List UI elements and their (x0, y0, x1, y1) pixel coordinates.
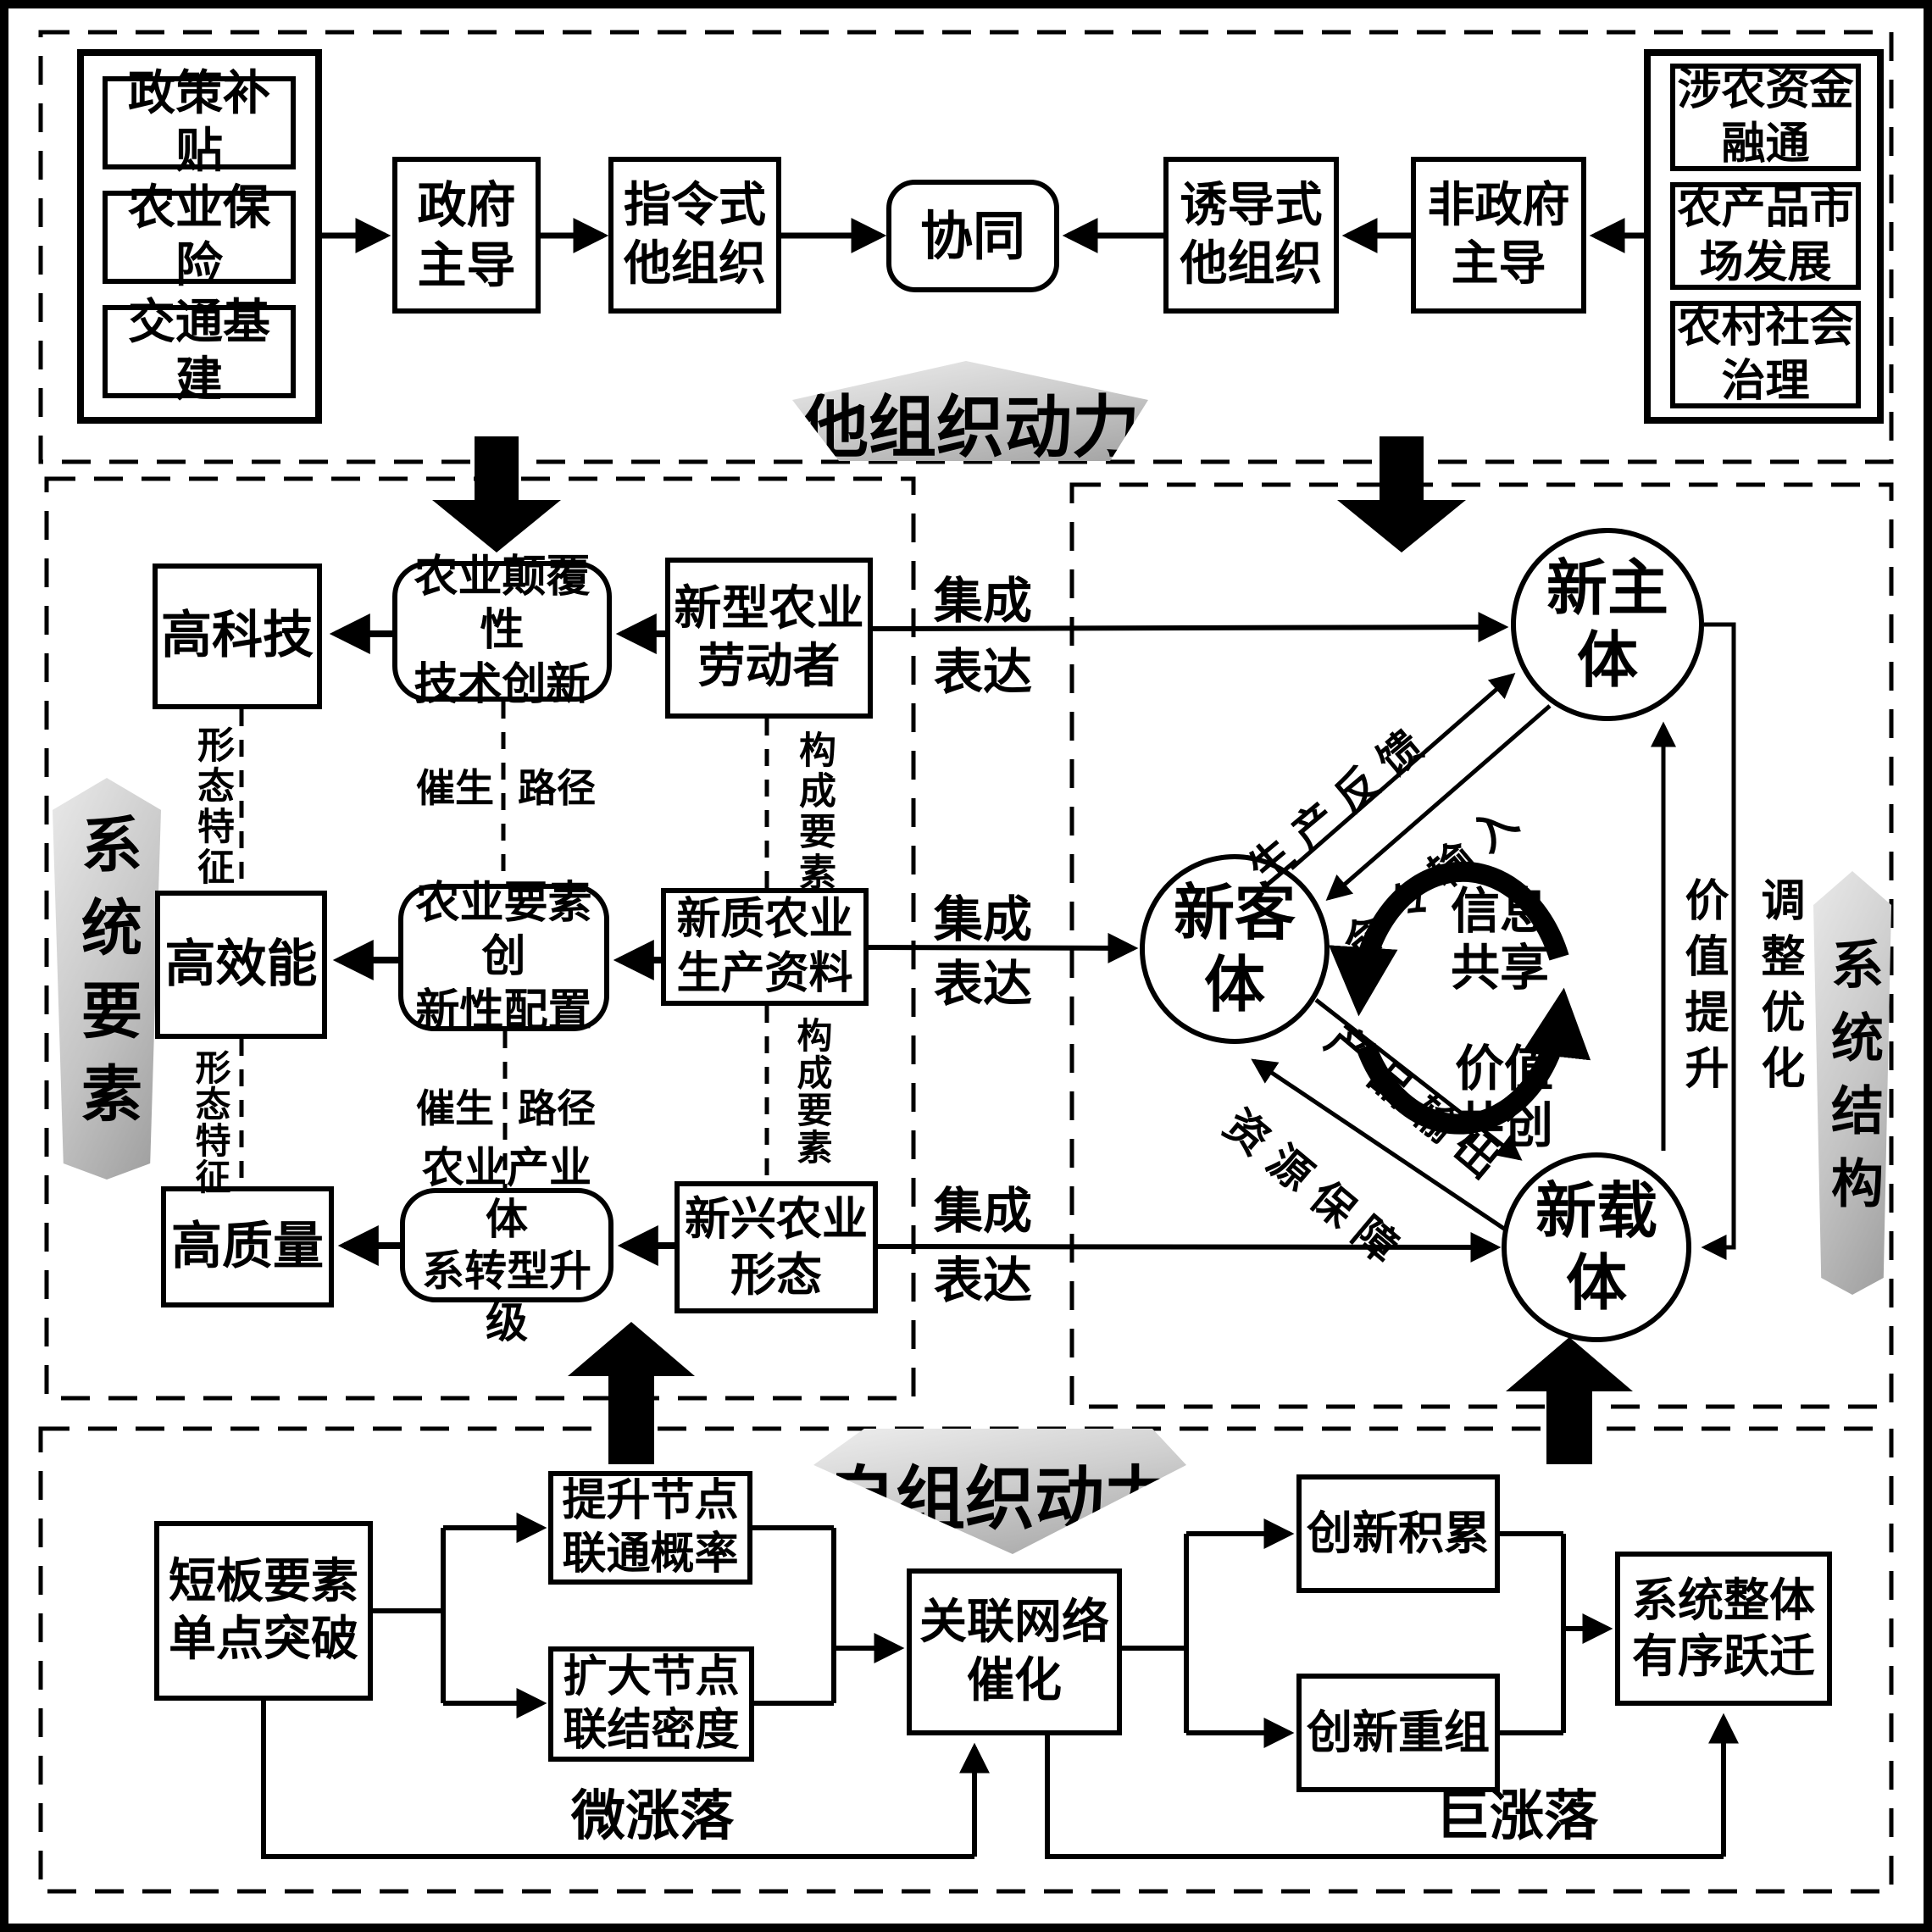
integration-label-3: 集成 (928, 1183, 1038, 1240)
route-label-1: 路径 (517, 766, 597, 811)
box-element-innovative-allocation: 农业要素创 新性配置 (398, 884, 609, 1031)
box-synergy: 协同 (886, 180, 1059, 292)
component-label-2: 构成要素 (786, 1017, 838, 1166)
circle-new-carrier: 新载 体 (1502, 1152, 1691, 1342)
morph-trait-label-1: 形态特征 (185, 725, 239, 888)
value-upgrade-label: 价值提升 (1671, 877, 1735, 1101)
morph-trait-label-2: 形态特征 (185, 1049, 236, 1195)
diagram-canvas: 政策补贴 农业保险 交通基建 政府 主导 指令式 他组织 协同 诱导式 他组织 … (0, 0, 1932, 1932)
box-node-link-density: 扩大节点 联结密度 (548, 1646, 754, 1762)
box-non-government-led: 非政府 主导 (1411, 157, 1586, 314)
box-agri-insurance: 农业保险 (103, 191, 296, 284)
box-emerging-agri-forms: 新兴农业 形态 (675, 1181, 878, 1313)
box-new-agri-production-materials: 新质农业 生产资料 (661, 888, 869, 1006)
adjust-optimize-label: 调整优化 (1747, 877, 1811, 1101)
box-industry-system-upgrade: 农业产业体 系转型升级 (400, 1188, 613, 1302)
box-disruptive-tech-innovation: 农业颠覆性 技术创新 (392, 561, 612, 702)
expression-label-2: 表达 (928, 956, 1038, 1013)
route-label-2: 路径 (517, 1086, 597, 1131)
integration-label-2: 集成 (928, 891, 1038, 948)
component-label-1: 构成要素 (786, 730, 841, 893)
macro-fluctuation-label: 巨涨落 (1430, 1786, 1603, 1849)
box-innovation-accumulation: 创新积累 (1296, 1474, 1500, 1593)
integration-label-1: 集成 (928, 573, 1038, 630)
banner-system-structure: 系统结构 (1813, 871, 1891, 1295)
box-policy-subsidy: 政策补贴 (103, 76, 296, 169)
box-shortboard-breakthrough: 短板要素 单点突破 (154, 1521, 373, 1701)
box-new-agri-laborers: 新型农业 劳动者 (665, 558, 873, 719)
spawn-label-2: 催生 (415, 1086, 495, 1131)
box-network-catalysis: 关联网络 催化 (907, 1568, 1122, 1735)
info-sharing-label: 信息 共享 (1441, 883, 1559, 996)
box-node-connect-probability: 提升节点 联通概率 (548, 1471, 752, 1585)
box-high-tech: 高科技 (153, 563, 322, 709)
box-system-orderly-leap: 系统整体 有序跃迁 (1615, 1552, 1832, 1706)
box-transport-infrastructure: 交通基建 (103, 305, 296, 398)
box-high-efficiency: 高效能 (155, 891, 327, 1039)
micro-fluctuation-label: 微涨落 (566, 1786, 739, 1849)
box-high-quality: 高质量 (161, 1186, 334, 1307)
box-rural-social-governance: 农村社会 治理 (1670, 301, 1861, 408)
expression-label-1: 表达 (928, 644, 1038, 701)
box-government-led: 政府 主导 (392, 157, 541, 314)
expression-label-3: 表达 (928, 1252, 1038, 1309)
box-agri-fund-financing: 涉农资金 融通 (1670, 64, 1861, 171)
box-directive-hetero-organization: 指令式 他组织 (608, 157, 781, 314)
spawn-label-1: 催生 (415, 766, 495, 811)
system-structure-label: 系统结构 (1814, 937, 1890, 1229)
box-innovation-recombination: 创新重组 (1296, 1674, 1500, 1792)
banner-system-elements: 系统要素 (53, 778, 161, 1180)
circle-new-object: 新客 体 (1140, 854, 1330, 1044)
system-elements-label: 系统要素 (63, 813, 152, 1145)
box-agri-product-market: 农产品市 场发展 (1670, 182, 1861, 290)
box-induced-hetero-organization: 诱导式 他组织 (1163, 157, 1339, 314)
circle-new-subject: 新主 体 (1511, 528, 1704, 721)
